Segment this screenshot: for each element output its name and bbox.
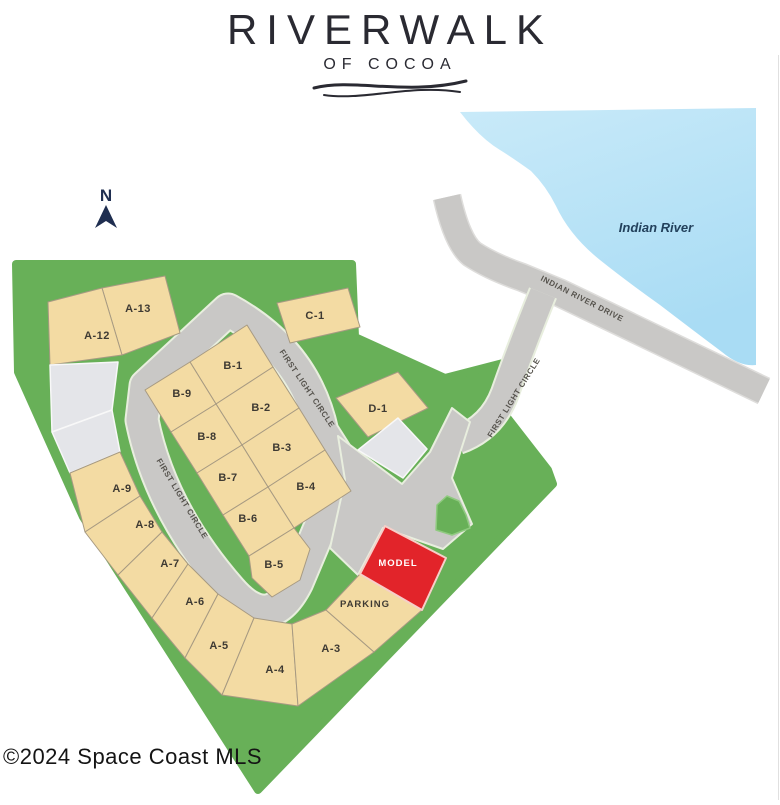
lot-label-A-9: A-9 bbox=[112, 483, 131, 495]
lot-label-A-7: A-7 bbox=[160, 558, 179, 570]
image-right-border bbox=[778, 55, 779, 800]
lot-label-B-9: B-9 bbox=[172, 388, 191, 400]
lot-label-A-6: A-6 bbox=[185, 596, 204, 608]
lot-label-A-8: A-8 bbox=[135, 519, 154, 531]
lot-label-model: MODEL bbox=[378, 558, 417, 569]
lot-label-B-2: B-2 bbox=[251, 402, 270, 414]
lot-label-B-3: B-3 bbox=[272, 442, 291, 454]
lot-label-D-1: D-1 bbox=[368, 403, 387, 415]
development-subtitle: OF COCOA bbox=[0, 56, 780, 74]
plat-map-svg: A-13A-12A-9A-8A-7A-6A-5A-4A-3PARKINGMODE… bbox=[0, 0, 780, 800]
lot-label-A-12: A-12 bbox=[84, 330, 110, 342]
lot-label-B-6: B-6 bbox=[238, 513, 257, 525]
lot-label-B-7: B-7 bbox=[218, 472, 237, 484]
lot-label-A-4: A-4 bbox=[265, 664, 285, 676]
lot-label-A-5: A-5 bbox=[209, 640, 228, 652]
copyright-watermark: ©2024 Space Coast MLS bbox=[3, 744, 262, 770]
logo-wave-icon bbox=[310, 76, 470, 102]
lot-label-B-5: B-5 bbox=[264, 559, 283, 571]
development-name: RIVERWALK bbox=[0, 8, 780, 52]
lot-label-parking: PARKING bbox=[340, 599, 390, 610]
north-arrow-icon bbox=[95, 205, 117, 228]
lot-label-B-8: B-8 bbox=[197, 431, 216, 443]
lot-label-C-1: C-1 bbox=[305, 310, 324, 322]
indian-river-label: Indian River bbox=[619, 220, 694, 235]
lot-label-A-13: A-13 bbox=[125, 303, 151, 315]
development-logo: RIVERWALK OF COCOA bbox=[0, 8, 780, 102]
north-label: N bbox=[100, 186, 112, 205]
site-map: A-13A-12A-9A-8A-7A-6A-5A-4A-3PARKINGMODE… bbox=[0, 0, 780, 800]
lot-label-B-4: B-4 bbox=[296, 481, 316, 493]
lot-label-B-1: B-1 bbox=[223, 360, 242, 372]
lot-label-A-3: A-3 bbox=[321, 643, 340, 655]
